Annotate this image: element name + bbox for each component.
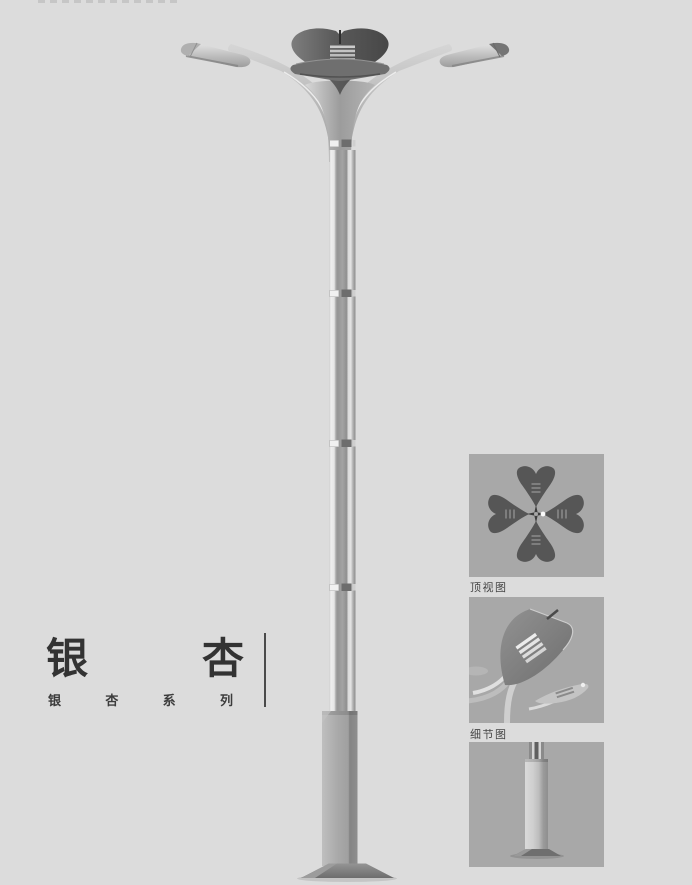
series-char: 杏 [105, 690, 118, 709]
series-char: 银 [48, 690, 61, 709]
product-title: 银 杏 [46, 636, 244, 682]
series-char: 系 [163, 690, 176, 709]
lamp-head-left [181, 43, 251, 67]
product-series-subtitle: 银 杏 系 列 [48, 690, 233, 709]
base-view-thumbnail [469, 742, 604, 867]
detail-view-label: 细节图 [470, 726, 605, 740]
lamp-base-plate [297, 864, 397, 883]
product-title-char: 银 [46, 636, 88, 682]
detail-view-thumbnail [469, 597, 604, 723]
catalog-page: 银 杏 银 杏 系 列 [0, 0, 692, 885]
lamp-pole [330, 150, 356, 712]
lamp-base-column [322, 711, 358, 866]
top-view-drawing [469, 454, 604, 577]
product-title-char: 杏 [202, 636, 244, 682]
detail-view-drawing [469, 597, 604, 723]
series-char: 列 [220, 690, 233, 709]
base-view-drawing [469, 742, 604, 867]
top-view-label: 顶视图 [470, 579, 605, 593]
title-divider-line [264, 633, 266, 707]
top-view-thumbnail [469, 454, 604, 577]
